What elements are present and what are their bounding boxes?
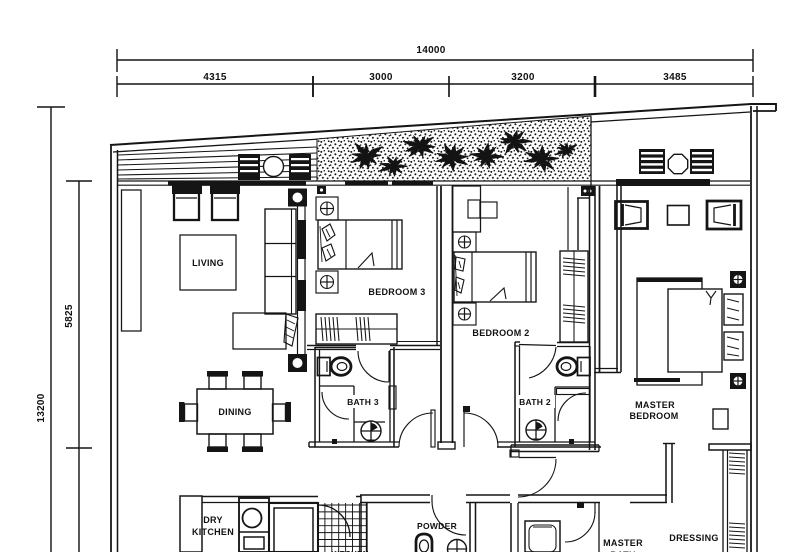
svg-text:POWDER: POWDER: [417, 521, 457, 531]
svg-text:BEDROOM 3: BEDROOM 3: [368, 287, 425, 297]
svg-text:14000: 14000: [416, 45, 445, 56]
svg-text:MASTER: MASTER: [635, 400, 675, 410]
svg-text:MASTER: MASTER: [603, 538, 643, 548]
svg-text:DRY: DRY: [203, 515, 223, 525]
svg-text:3485: 3485: [663, 72, 687, 83]
svg-text:BEDROOM 2: BEDROOM 2: [472, 328, 529, 338]
svg-text:4315: 4315: [203, 72, 227, 83]
svg-text:3000: 3000: [369, 72, 393, 83]
svg-text:BATH 2: BATH 2: [519, 397, 551, 407]
svg-text:DINING: DINING: [218, 407, 251, 417]
svg-text:5825: 5825: [64, 304, 75, 328]
svg-text:BATH 3: BATH 3: [347, 397, 379, 407]
svg-text:BEDROOM: BEDROOM: [629, 411, 678, 421]
svg-text:3200: 3200: [511, 72, 535, 83]
svg-text:LIVING: LIVING: [192, 258, 224, 268]
svg-text:13200: 13200: [36, 393, 47, 422]
svg-text:DRESSING: DRESSING: [669, 533, 718, 543]
svg-text:KITCHEN: KITCHEN: [192, 527, 234, 537]
